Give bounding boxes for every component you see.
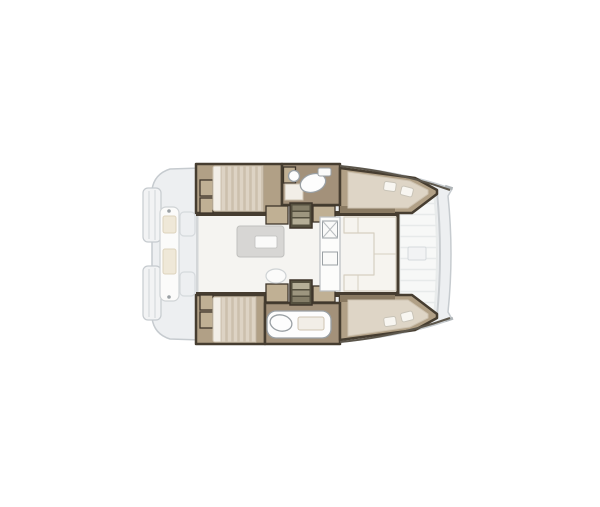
step-tread <box>293 291 310 296</box>
step-tread <box>293 212 310 217</box>
port-aft-locker <box>200 180 213 196</box>
stbd-forward-pillow <box>384 316 397 327</box>
bench-fitting <box>167 209 171 213</box>
stbd-aft-bed-mattress <box>221 297 256 342</box>
swim-platform-port <box>143 188 161 242</box>
floorplan-drawing: Catamaran interior layout plan, top view… <box>0 0 600 507</box>
step-tread <box>293 206 310 211</box>
port-forward-pillow <box>383 181 396 192</box>
stbd-aft-locker <box>200 295 213 310</box>
swim-platform-starboard <box>143 266 161 320</box>
cockpit-table-pad <box>255 236 277 248</box>
catamaran-floorplan: Catamaran interior layout plan, top view… <box>0 0 600 507</box>
bench-cushion <box>163 249 176 274</box>
galley <box>320 217 340 291</box>
port-aft-locker <box>200 198 213 213</box>
step-tread <box>293 297 310 302</box>
saloon-seat <box>266 269 286 283</box>
stbd-aft-locker <box>200 312 213 328</box>
galley-stove <box>323 252 338 265</box>
port-companionway-cabinet <box>266 206 288 224</box>
bow-locker <box>408 247 426 260</box>
step-tread <box>293 283 310 289</box>
step-tread <box>293 219 310 225</box>
bench-fitting <box>167 295 171 299</box>
port-toilet-tank <box>318 168 331 176</box>
bench-cushion <box>163 216 176 233</box>
port-sink <box>289 171 300 182</box>
saloon-aft-door <box>196 216 199 292</box>
stbd-companionway-cabinet <box>266 284 288 302</box>
port-aft-bed-mattress <box>221 166 263 211</box>
stbd-sink-counter <box>298 317 324 330</box>
